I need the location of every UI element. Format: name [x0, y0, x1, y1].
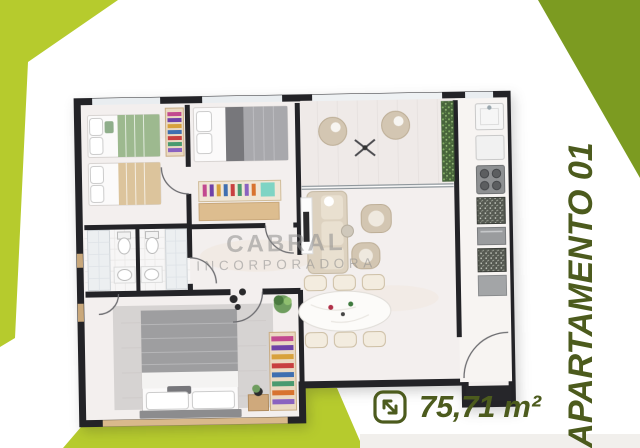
dining-chair	[305, 332, 327, 347]
dresser	[199, 202, 279, 220]
apartment-label-text: APARTAMENTO 01	[562, 142, 601, 447]
tv-console	[301, 198, 313, 254]
counter-granite-2	[478, 248, 506, 271]
balcony-chair-2	[381, 111, 409, 139]
coffee-table	[341, 225, 353, 237]
counter-granite	[477, 197, 505, 223]
armchair-1	[361, 204, 391, 233]
laundry-tank	[475, 103, 503, 129]
single-bed-1	[87, 114, 160, 157]
balcony-chair-1	[318, 117, 346, 145]
apartment-label: APARTAMENTO 01	[560, 170, 602, 420]
master-wardrobe-clothes	[269, 332, 296, 410]
dining-chair	[304, 275, 326, 290]
page: { "branding": { "watermark_line1": "CABR…	[0, 0, 640, 448]
wardrobe-clothes	[165, 108, 184, 156]
dining-chair	[334, 332, 356, 347]
master-bed	[138, 309, 242, 419]
fridge	[476, 135, 504, 159]
balcony-glass-divider	[302, 185, 454, 188]
dishwasher	[477, 227, 505, 244]
area-badge: 75,71 m²	[372, 389, 541, 425]
dining-chair	[333, 275, 355, 290]
area-value: 75,71 m²	[419, 389, 541, 425]
dining-chair	[362, 274, 384, 289]
stove	[476, 165, 504, 193]
single-bed-2	[88, 162, 161, 205]
dining-chair	[363, 331, 385, 346]
dining-area	[298, 274, 391, 348]
double-bed	[193, 106, 288, 162]
cabinet	[478, 275, 506, 295]
area-expand-icon	[372, 389, 408, 425]
planter	[441, 101, 454, 181]
armchair-2	[352, 243, 380, 269]
closet-clothes	[199, 180, 281, 201]
master-bedroom	[112, 288, 296, 420]
